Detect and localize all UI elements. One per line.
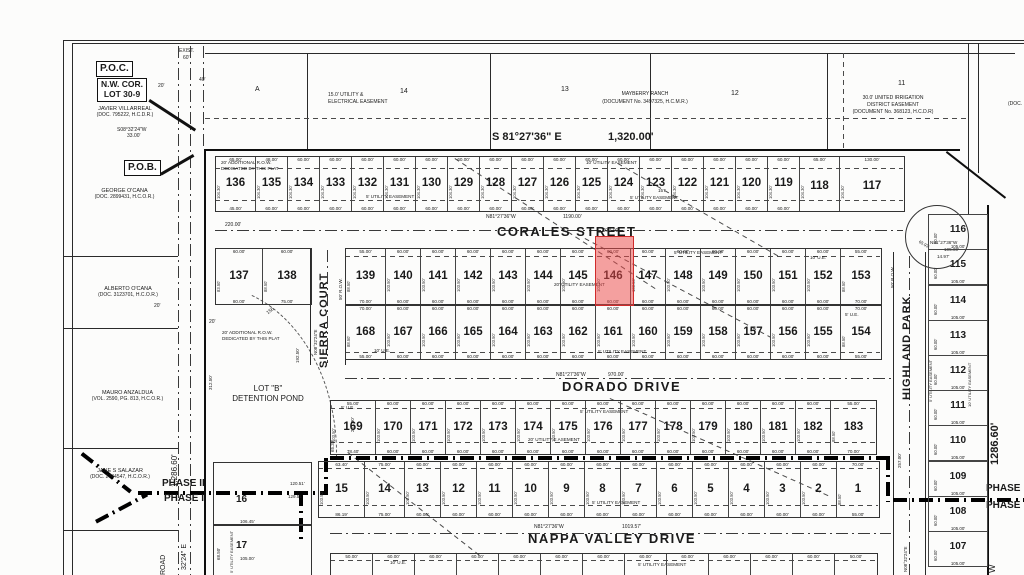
lot-rear-dim: 60.00': [549, 512, 584, 518]
lot-stub: 60.00': [625, 554, 667, 575]
lot-depth-dim: 60.00': [933, 550, 938, 561]
lot-depth-dim: 103.50': [516, 429, 521, 443]
nw-cor-line2: LOT 30-9: [104, 89, 140, 99]
lot-number: 11: [477, 484, 512, 496]
lot-frontage-dim: 65.00': [800, 157, 839, 163]
lot-frontage-dim: 60.00': [631, 306, 665, 312]
lot-frontage-dim: 60.00': [352, 157, 383, 163]
lot-9: 60.00'960.00'103.50': [549, 462, 585, 517]
lot-depth-dim: 103.50': [806, 334, 811, 348]
lot-frontage-dim: 60.00': [801, 462, 836, 468]
lot-143: 60.00'14360.00'103.50': [491, 249, 526, 304]
lot-149: 60.00'14960.00'103.50': [701, 249, 736, 304]
lot-153: 55.00'15370.00'88.50': [841, 249, 881, 304]
lot-frontage-dim: 60.00': [526, 306, 560, 312]
lot-number: 169: [331, 422, 375, 434]
lot-number: 167: [386, 327, 420, 339]
owner-alberto-doc: (DOC. 3123701, H.C.O.R.): [88, 293, 168, 299]
lot-rear-dim: 60.00': [729, 512, 764, 518]
lot-109: 109105.00'60.00': [928, 461, 988, 497]
lot-rear-dim: 60.00': [513, 512, 548, 518]
lot-rear-dim: 60.00': [446, 449, 480, 455]
lot-frontage-dim: 60.00': [456, 249, 490, 255]
utility-electrical-easement-note: 15.0' UTILITY &: [328, 93, 363, 99]
lot-stub: 60.00': [583, 554, 625, 575]
lot-frontage-dim: 60.00': [796, 401, 830, 407]
map-line: [95, 493, 148, 524]
lot-177: 60.00'17760.00'103.50': [621, 401, 656, 454]
lot-rear-dim: 60.00': [596, 354, 630, 360]
lot-number: 10: [513, 484, 548, 496]
lot-rear-dim: 60.00': [456, 354, 490, 360]
lot-depth-dim: 60.00': [933, 303, 938, 314]
lot-rear-dim: 55.00': [346, 354, 385, 360]
poc-tie-distance: 33.00': [127, 134, 140, 140]
lot-frontage-dim: 60.00': [771, 306, 805, 312]
pob-callout: P.O.B.: [124, 160, 161, 176]
lot-frontage-dim: 60.00': [806, 249, 840, 255]
map-line: [205, 118, 970, 119]
lot-frontage-dim: 60.00': [736, 249, 770, 255]
lot-number: 9: [549, 484, 584, 496]
lot-depth-dim: 103.50': [657, 491, 662, 505]
lot-number: 177: [621, 422, 655, 434]
lot-127: 60.00'12760.00'104.30': [512, 157, 544, 211]
lot-stub: 50.00': [331, 554, 373, 575]
lot-number: 13: [405, 484, 440, 496]
lot-frontage-dim: 48.00': [256, 157, 287, 163]
lot-frontage-dim: 55.00': [346, 249, 385, 255]
lot-frontage-dim: 60.00': [672, 157, 703, 163]
map-line: [204, 149, 206, 575]
lot-depth-dim: 103.50': [736, 334, 741, 348]
owner-george-doc: (DOC. 2899431, H.C.O.R.): [82, 195, 167, 201]
lot-frontage-dim: 60.00': [491, 249, 525, 255]
lot-111: 111105.00'60.00': [928, 390, 988, 426]
dim-label: DEDICATED BY THIS PLAT: [222, 336, 280, 341]
lot-depth-dim: 104.30': [736, 186, 741, 200]
lot-depth-dim: 103.50': [446, 429, 451, 443]
lot-frontage-dim: 60.00': [666, 306, 700, 312]
lot-7: 60.00'760.00'103.50': [621, 462, 657, 517]
lot-frontage-dim: 55.00': [841, 249, 881, 255]
lot-frontage-dim: 60.00': [771, 249, 805, 255]
map-line: [205, 149, 960, 151]
lot-number: 142: [456, 271, 490, 283]
west-road-name-cut: ROAD: [160, 555, 168, 575]
lot-rear-dim: 55.00': [837, 512, 879, 518]
dim-label: 106.45': [240, 519, 255, 524]
lot-119: 60.00'11960.00'104.30': [768, 157, 800, 211]
lot-113: 113105.00'60.00': [928, 320, 988, 356]
lot-frontage-dim: 60.00': [416, 157, 447, 163]
lot-136: 65.00'13645.00'104.30': [216, 157, 256, 211]
lot-depth-dim: 103.50': [421, 278, 426, 292]
lot-179: 60.00'17960.00'103.50': [691, 401, 726, 454]
lot-rear-dim: 60.00': [352, 206, 383, 212]
lot-rear-dim: 60.00': [726, 449, 760, 455]
lot-frontage-dim: 60.00': [512, 157, 543, 163]
lot-rear-dim: 80.00': [216, 299, 262, 305]
lot-rear-dim: 75.00': [365, 512, 404, 518]
lot-frontage-dim: 60.00': [551, 401, 585, 407]
dim-label: 50' R.O.W.: [890, 266, 895, 288]
lot-depth-dim: 60.00': [933, 374, 938, 385]
lot-frontage-dim: 60.00': [736, 157, 767, 163]
lot-148: 60.00'14860.00'103.50': [666, 249, 701, 304]
lot-width-dim: 105.00': [929, 561, 987, 566]
lot-rear-dim: 60.00': [765, 512, 800, 518]
poc-label: P.O.C.: [100, 63, 129, 74]
lot-number: 143: [491, 271, 525, 283]
lot-depth-dim: 104.30': [512, 186, 517, 200]
lot-171: 60.00'17160.00'103.50': [411, 401, 446, 454]
lot-4: 60.00'460.00'103.50': [729, 462, 765, 517]
map-line: [925, 252, 926, 575]
lot-depth-dim: 103.50': [701, 278, 706, 292]
lot-number: 162: [561, 327, 595, 339]
lot-10: 60.00'1060.00'103.50': [513, 462, 549, 517]
dorado-drive-label: DORADO DRIVE: [562, 380, 681, 395]
lot-frontage-dim: 60.00': [480, 157, 511, 163]
lot-rear-dim: 75.00': [263, 299, 311, 305]
highland-park-label: HIGHLAND PARK: [901, 296, 914, 400]
map-line: [827, 53, 828, 150]
lot-147: 60.00'14760.00'103.50': [631, 249, 666, 304]
lot-frontage-dim: 60.00': [765, 462, 800, 468]
lot-number: 153: [841, 271, 881, 283]
lot-depth-dim: 60.00': [933, 233, 938, 244]
lot-depth-dim: 60.00': [933, 338, 938, 349]
lot-123: 60.00'12360.00'104.30': [640, 157, 672, 211]
lot-rear-dim: 60.00': [480, 206, 511, 212]
lot-rear-dim: 60.00': [631, 354, 665, 360]
lot-frontage-dim: 60.00': [441, 462, 476, 468]
lot-rear-dim: 60.00': [796, 449, 830, 455]
lot-rear-dim: 70.00': [831, 449, 876, 455]
lot-frontage-dim: 63.40': [319, 462, 364, 468]
plat-map: P.O.C. N.W. COR. LOT 30-9 P.O.B. JAVIER …: [0, 0, 1024, 575]
lot-rear-dim: 60.00': [386, 354, 420, 360]
lot-122: 60.00'12260.00'104.30': [672, 157, 704, 211]
lot-frontage-dim: 60.00': [263, 249, 311, 255]
lot-frontage-dim: 60.00': [499, 554, 540, 560]
lot-depth-dim: 60.00': [933, 409, 938, 420]
lot-156: 60.00'15660.00'103.50': [771, 306, 806, 359]
map-line: [978, 43, 979, 173]
lot-frontage-dim: 60.00': [411, 401, 445, 407]
lot-depth-dim: 103.50': [736, 278, 741, 292]
lot-depth-dim: 103.50': [456, 334, 461, 348]
lot-frontage-dim: 60.00': [701, 306, 735, 312]
lot-number: 5: [693, 484, 728, 496]
lot-rear-dim: 70.00': [841, 299, 881, 305]
lot-17-number: 17: [236, 540, 247, 552]
lot-depth-dim: 103.50': [561, 334, 566, 348]
lot-172: 60.00'17260.00'103.50': [446, 401, 481, 454]
lot-frontage-dim: 60.00': [491, 306, 525, 312]
lot-frontage-dim: 60.00': [621, 462, 656, 468]
lot-stub: 60.00': [541, 554, 583, 575]
lot-stub: 50.00': [835, 554, 877, 575]
lot-142: 60.00'14260.00'103.50': [456, 249, 491, 304]
lot-rear-dim: 60.00': [386, 299, 420, 305]
lot-167: 60.00'16760.00'103.50': [386, 306, 421, 359]
lot-number: 164: [491, 327, 525, 339]
lot-rear-dim: 60.00': [704, 206, 735, 212]
dim-label: DISTRICT EASEMENT: [838, 103, 948, 109]
lot-rear-dim: 70.00': [346, 299, 385, 305]
lot-depth-dim: 103.50': [765, 491, 770, 505]
dim-label: 20': [158, 84, 165, 90]
lot-depth-dim: 103.50': [729, 491, 734, 505]
lot-number: 163: [526, 327, 560, 339]
lot-depth-dim: 103.50': [411, 429, 416, 443]
lot-stub: 60.00': [415, 554, 457, 575]
lot-number: 136: [216, 178, 255, 190]
lot-rear-dim: 60.00': [477, 512, 512, 518]
dim-label: 5' UTILITY EASEMENT: [230, 531, 235, 573]
lot-frontage-dim: 60.00': [561, 249, 595, 255]
lot-depth-dim: 104.30': [256, 186, 261, 200]
lot-frontage-dim: 60.00': [561, 306, 595, 312]
lot-depth-dim: 88.50': [831, 431, 836, 442]
lot-number: 154: [841, 327, 881, 339]
dim-label: N81°27'36"W: [534, 525, 564, 531]
lot-frontage-dim: 50.00': [835, 554, 877, 560]
lot-number: 176: [586, 422, 620, 434]
lot-number: 14: [365, 484, 404, 496]
lot-144: 60.00'14460.00'103.50': [526, 249, 561, 304]
lot-depth-dim: 88.50': [841, 281, 846, 292]
lot-rear-dim: 60.00': [526, 299, 560, 305]
lot-rear-dim: 60.00': [761, 449, 795, 455]
lot-depth-dim: 104.30': [480, 186, 485, 200]
lot-stub: 60.00': [793, 554, 835, 575]
lot-depth-dim: 104.30': [768, 186, 773, 200]
lot-number: 137: [216, 271, 262, 283]
lot-number: 4: [729, 484, 764, 496]
lot-rear-dim: 60.00': [691, 449, 725, 455]
lot-depth-dim: 103.50': [631, 334, 636, 348]
lot-121: 60.00'12160.00'104.30': [704, 157, 736, 211]
lot-stub: 60.00': [667, 554, 709, 575]
lot-depth-dim: 88.50': [841, 336, 846, 347]
lot-178: 60.00'17860.00'103.50': [656, 401, 691, 454]
lot-frontage-dim: 55.00': [831, 401, 876, 407]
lot-rear-dim: 60.00': [621, 512, 656, 518]
dim-label: 192.50': [295, 348, 300, 363]
lot-depth-dim: 103.50': [526, 278, 531, 292]
lot-depth-dim: 104.30': [800, 186, 805, 200]
phase-right-lower: PHASE: [986, 500, 1020, 512]
lot-110: 110105.00'60.00': [928, 425, 988, 461]
lot-126: 60.00'12660.00'104.30': [544, 157, 576, 211]
lot-rear-dim: 60.00': [561, 354, 595, 360]
lot-150: 60.00'15060.00'103.50': [736, 249, 771, 304]
lot-rear-dim: 60.00': [491, 354, 525, 360]
lot-depth-dim: 104.30': [384, 186, 389, 200]
lot-132: 60.00'13260.00'104.30': [352, 157, 384, 211]
lot-depth-dim: 104.30': [640, 186, 645, 200]
lot-frontage-dim: 60.00': [288, 157, 319, 163]
lot-number: 179: [691, 422, 725, 434]
lot-rear-dim: 60.00': [656, 449, 690, 455]
lot-depth-dim: 104.30': [352, 186, 357, 200]
lot-row-mid_west: 60.00'13780.00'83.50'60.00'13875.00'88.5…: [215, 248, 312, 305]
lot-stub: 60.00': [709, 554, 751, 575]
map-line: [205, 53, 1015, 54]
nw-cor-line1: N.W. COR.: [101, 79, 143, 89]
lot-11: 60.00'1160.00'103.50': [477, 462, 513, 517]
dim-label: N08°32'24"E: [903, 546, 908, 572]
lot-depth-dim: 88.50': [346, 336, 351, 347]
lot-rear-dim: 60.00': [516, 449, 550, 455]
dim-label: ELECTRICAL EASEMENT: [328, 100, 388, 106]
lot-number: 15: [319, 484, 364, 496]
dim-label: 20': [209, 320, 216, 326]
lot-13: 60.00'1360.00'103.50': [405, 462, 441, 517]
lot-depth-dim: 103.50': [319, 491, 324, 505]
lot-115: 115105.00'60.00': [928, 249, 988, 285]
lot-frontage-dim: 55.00': [331, 401, 375, 407]
lot-frontage-dim: 60.00': [761, 401, 795, 407]
lot-rear-dim: 60.00': [561, 299, 595, 305]
lot-depth-dim: 103.50': [551, 429, 556, 443]
lot-160: 60.00'16060.00'103.50': [631, 306, 666, 359]
nappa-valley-drive-label: NAPPA VALLEY DRIVE: [528, 532, 696, 547]
poc-callout: P.O.C.: [96, 61, 133, 77]
lot-rear-dim: 60.00': [411, 449, 445, 455]
tract-14: 14: [400, 88, 408, 96]
lot-176: 60.00'17660.00'103.50': [586, 401, 621, 454]
lot-number: 150: [736, 271, 770, 283]
lot-frontage-dim: 60.00': [320, 157, 351, 163]
lot-rear-dim: 60.00': [481, 449, 515, 455]
lot-row-south_upper: 55.00'16978.40'103.50'60.00'17060.00'103…: [330, 400, 877, 455]
lot-depth-dim: 103.50': [513, 491, 518, 505]
lot-row-south_lower: 63.40'1586.19'103.50'75.00'1475.00'103.5…: [318, 461, 880, 518]
map-line: [203, 46, 204, 150]
lot-114: 114105.00'60.00': [928, 285, 988, 321]
tract-11: 11: [898, 80, 905, 88]
lot-rear-dim: 55.00': [841, 354, 881, 360]
lot-137: 60.00'13780.00'83.50': [216, 249, 263, 304]
lot-number: 12: [441, 484, 476, 496]
lot-frontage-dim: 60.00': [793, 554, 834, 560]
lot-number: 172: [446, 422, 480, 434]
lot-frontage-dim: 60.00': [608, 157, 639, 163]
lot-frontage-dim: 60.00': [421, 306, 455, 312]
lot-129: 60.00'12960.00'104.30': [448, 157, 480, 211]
lot-rear-dim: 60.00': [608, 206, 639, 212]
lot-125: 60.00'12560.00'104.30': [576, 157, 608, 211]
lot-number: 158: [701, 327, 735, 339]
additional-row-note-west: 20' ADDITIONAL R.O.W.: [222, 330, 272, 335]
lot-number: 156: [771, 327, 805, 339]
map-line: [72, 43, 1024, 44]
lot-145: 60.00'14560.00'103.50': [561, 249, 596, 304]
lot-rear-dim: 60.00': [421, 299, 455, 305]
lot-number: 118: [800, 181, 839, 193]
lot-depth-dim: 104.30': [608, 186, 613, 200]
lot-frontage-dim: 60.00': [729, 462, 764, 468]
lot-141: 60.00'14160.00'103.50': [421, 249, 456, 304]
lot-frontage-dim: 60.00': [516, 401, 550, 407]
lot-number: 117: [840, 181, 904, 193]
lot-rear-dim: 78.40': [331, 449, 375, 455]
lot-depth-dim: 88.50': [263, 281, 268, 292]
lot-number: 181: [761, 422, 795, 434]
lot-depth-dim: 103.50': [801, 491, 806, 505]
lot-168: 70.00'16855.00'88.50': [346, 306, 386, 359]
lot-152: 60.00'15260.00'103.50': [806, 249, 841, 304]
lot-frontage-dim: 70.00': [841, 306, 881, 312]
lot-frontage-dim: 60.00': [768, 157, 799, 163]
irrigation-easement-note: 30.0' UNITED IRRIGATION: [838, 96, 948, 102]
dim-label: 32'24" E: [181, 544, 189, 570]
lot-frontage-dim: 60.00': [481, 401, 515, 407]
lot-14: 75.00'1475.00'103.50': [365, 462, 405, 517]
lot-3: 60.00'360.00'103.50': [765, 462, 801, 517]
lot-frontage-dim: 60.00': [657, 462, 692, 468]
lot-number: 7: [621, 484, 656, 496]
lot-165: 60.00'16560.00'103.50': [456, 306, 491, 359]
lot-depth-dim: 60.00': [933, 479, 938, 490]
lot-frontage-dim: 60.00': [549, 462, 584, 468]
lot-rear-dim: 60.00': [771, 354, 805, 360]
lot-depth-dim: 103.50': [405, 491, 410, 505]
map-line: [213, 524, 312, 575]
lot-frontage-dim: 60.00': [386, 249, 420, 255]
lot-number: 160: [631, 327, 665, 339]
lot-frontage-dim: 60.00': [457, 554, 498, 560]
lot-frontage-dim: 60.00': [691, 401, 725, 407]
lot-number: 166: [421, 327, 455, 339]
lot-depth-dim: 103.50': [585, 491, 590, 505]
lot-depth-dim: 103.50': [656, 429, 661, 443]
lot-frontage-dim: 60.00': [621, 401, 655, 407]
lot-depth-dim: 103.50': [693, 491, 698, 505]
lot-number: 152: [806, 271, 840, 283]
map-line: [946, 151, 1006, 199]
lot-166: 60.00'16660.00'103.50': [421, 306, 456, 359]
lot-170: 60.00'17060.00'103.50': [376, 401, 411, 454]
dim-label: 105.00': [240, 556, 255, 561]
lot-stub: 60.00': [373, 554, 415, 575]
lot-173: 60.00'17360.00'103.50': [481, 401, 516, 454]
lot-frontage-dim: 60.00': [625, 554, 666, 560]
lot-frontage-dim: 60.00': [386, 306, 420, 312]
lot-depth-dim: 103.50': [331, 429, 336, 443]
dim-label: 120.51': [290, 481, 305, 486]
lot-depth-dim: 88.50': [346, 281, 351, 292]
lot-frontage-dim: 60.00': [405, 462, 440, 468]
lot-number: 151: [771, 271, 805, 283]
lot-134: 60.00'13460.00'104.30': [288, 157, 320, 211]
lot-frontage-dim: 60.00': [586, 401, 620, 407]
owner-jane-doc: (DOC. 2744547, H.C.O.R.): [80, 475, 160, 481]
lot-frontage-dim: 60.00': [544, 157, 575, 163]
lot-number: 159: [666, 327, 700, 339]
dim-label: W: [987, 565, 997, 574]
lot-frontage-dim: 65.00': [216, 157, 255, 163]
lot-frontage-dim: 60.00': [376, 401, 410, 407]
lot-depth-dim: 103.50': [666, 334, 671, 348]
lot-frontage-dim: 70.00': [837, 462, 879, 468]
dim-label: 20': [154, 304, 161, 310]
lot-number: 180: [726, 422, 760, 434]
